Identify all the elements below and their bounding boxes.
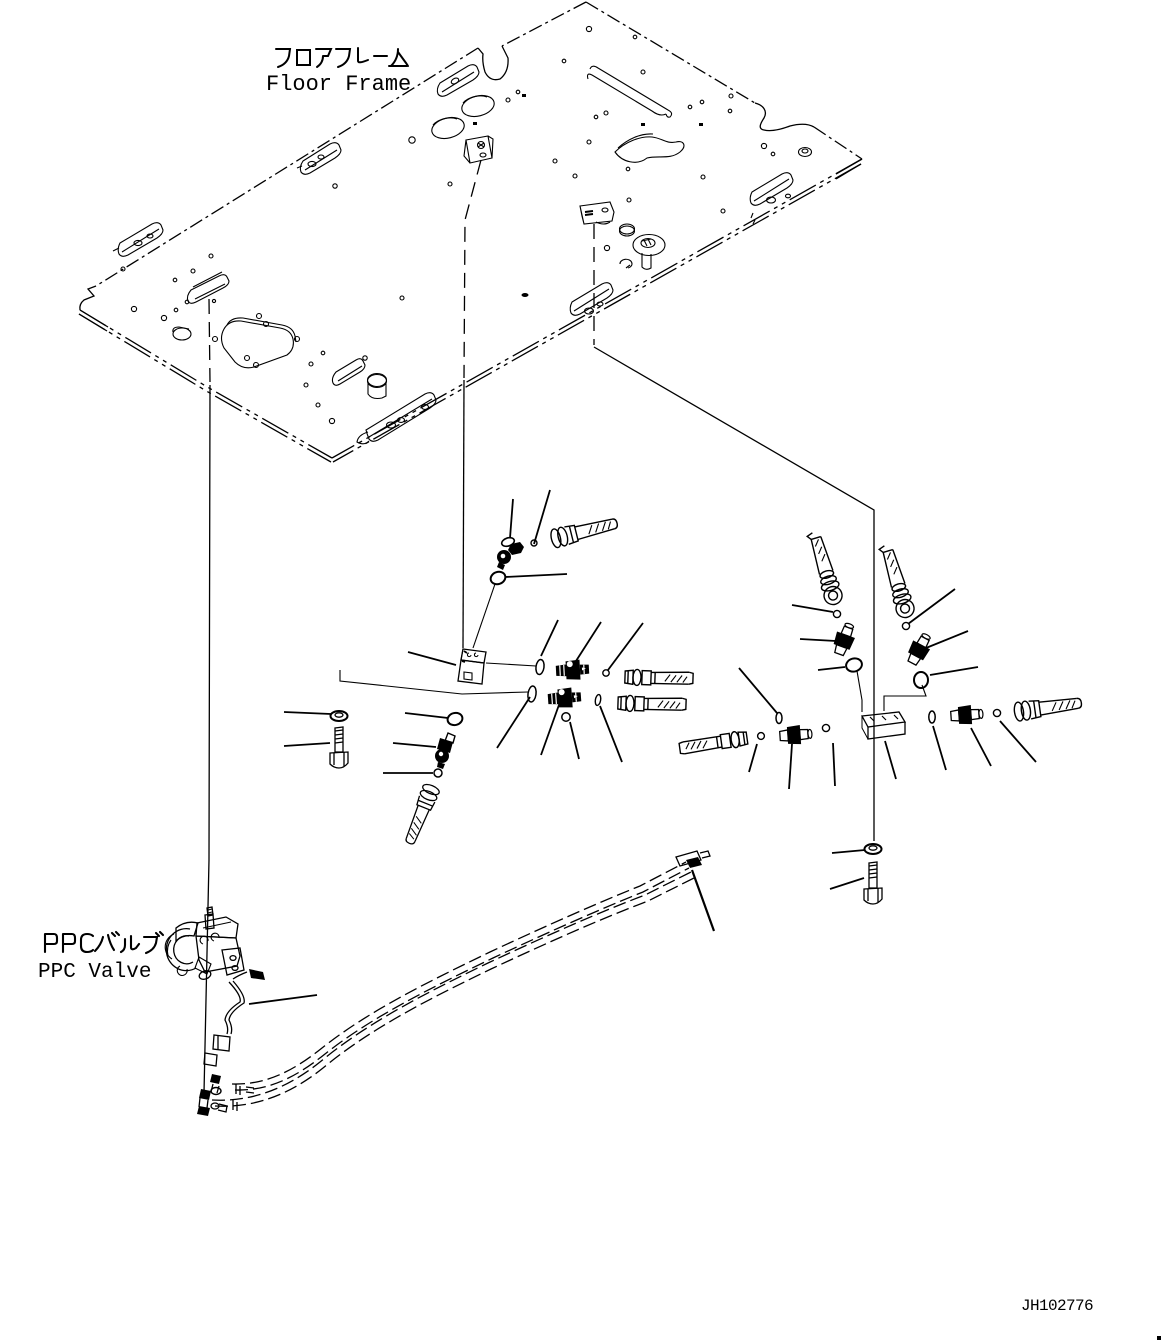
svg-text:JH102776: JH102776 [1021, 1297, 1093, 1315]
svg-text:PPC Valve: PPC Valve [38, 961, 151, 984]
svg-text:Floor Frame: Floor Frame [266, 72, 411, 97]
